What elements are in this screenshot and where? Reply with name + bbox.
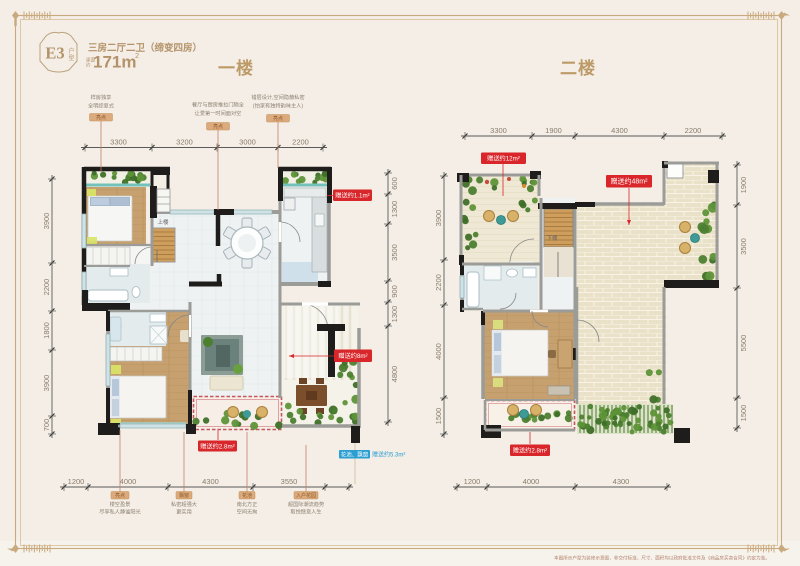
svg-text:3550: 3550: [281, 477, 298, 486]
svg-text:型: 型: [68, 54, 74, 62]
svg-text:亮点: 亮点: [96, 114, 106, 121]
svg-text:赠送约1.1m²: 赠送约1.1m²: [335, 192, 369, 200]
svg-text:2200: 2200: [434, 274, 443, 291]
svg-text:超国际潮流趋势: 超国际潮流趋势: [288, 500, 324, 508]
svg-text:4000: 4000: [120, 477, 137, 486]
svg-text:更实用: 更实用: [176, 508, 192, 516]
svg-text:私密超强大: 私密超强大: [171, 500, 197, 508]
svg-text:1300: 1300: [390, 201, 399, 218]
svg-text:3900: 3900: [42, 375, 51, 392]
svg-text:尽享私人静谧阳光: 尽享私人静谧阳光: [99, 508, 141, 516]
svg-text:赠送约2.8m²: 赠送约2.8m²: [513, 447, 547, 455]
svg-text:4000: 4000: [523, 477, 540, 486]
svg-text:飘窗: 飘窗: [179, 492, 189, 499]
svg-text:亮点: 亮点: [273, 115, 283, 122]
svg-text:3000: 3000: [239, 138, 256, 147]
svg-text:花池: 花池: [242, 492, 252, 499]
svg-text:下楼: 下楼: [546, 234, 558, 242]
svg-text:900: 900: [390, 285, 399, 298]
svg-text:1200: 1200: [68, 477, 85, 486]
svg-text:E3: E3: [45, 44, 64, 63]
svg-text:餐厅与厨房推拉门隔全: 餐厅与厨房推拉门隔全: [192, 101, 245, 109]
svg-text:(怕家有独特韵味主人): (怕家有独特韵味主人): [253, 102, 303, 110]
svg-text:赠送约8m²: 赠送约8m²: [338, 352, 367, 360]
svg-text:错层设计,空间隐蔽私密: 错层设计,空间隐蔽私密: [251, 93, 304, 101]
svg-text:赠送约2.8m²: 赠送约2.8m²: [200, 442, 234, 450]
svg-text:二楼: 二楼: [560, 58, 596, 78]
svg-text:1300: 1300: [390, 306, 399, 323]
svg-text:171m: 171m: [93, 53, 136, 72]
svg-text:一楼: 一楼: [218, 58, 254, 78]
svg-text:1200: 1200: [464, 477, 481, 486]
svg-text:2200: 2200: [685, 126, 702, 135]
svg-text:赠送约12m²: 赠送约12m²: [487, 155, 520, 163]
svg-text:赠送约48m²: 赠送约48m²: [611, 177, 649, 186]
svg-text:700: 700: [42, 419, 51, 432]
svg-text:上楼: 上楼: [157, 218, 169, 226]
svg-text:约: 约: [86, 62, 91, 69]
svg-text:1500: 1500: [434, 408, 443, 425]
svg-text:户: 户: [68, 47, 74, 55]
svg-text:1900: 1900: [545, 126, 562, 135]
svg-text:5500: 5500: [739, 335, 748, 352]
svg-text:楼空盈景: 楼空盈景: [110, 500, 131, 508]
svg-text:3900: 3900: [434, 210, 443, 227]
svg-text:3200: 3200: [176, 138, 193, 147]
svg-text:全明综复式: 全明综复式: [88, 102, 115, 110]
svg-text:4300: 4300: [202, 477, 219, 486]
svg-text:1900: 1900: [739, 177, 748, 194]
svg-text:3500: 3500: [390, 244, 399, 261]
svg-text:亮点: 亮点: [213, 123, 223, 130]
svg-text:4300: 4300: [613, 477, 630, 486]
svg-text:样房独享: 样房独享: [91, 93, 112, 101]
svg-text:2200: 2200: [42, 279, 51, 296]
svg-text:3500: 3500: [739, 238, 748, 255]
svg-text:3300: 3300: [110, 138, 127, 147]
svg-text:600: 600: [390, 177, 399, 190]
svg-text:本图所示户型为装修示意图，非交付标准，尺寸、面积均以政府批准: 本图所示户型为装修示意图，非交付标准，尺寸、面积均以政府批准文件及《商品房买卖合…: [554, 555, 770, 562]
svg-text:空间无拘: 空间无拘: [237, 508, 258, 516]
svg-text:赠送约5.3m²: 赠送约5.3m²: [372, 451, 405, 459]
svg-text:取悦惬意人生: 取悦惬意人生: [290, 508, 321, 516]
svg-text:1800: 1800: [42, 322, 51, 339]
svg-text:亮点: 亮点: [115, 492, 125, 499]
svg-text:2: 2: [135, 51, 139, 60]
svg-text:4300: 4300: [611, 126, 628, 135]
svg-text:4800: 4800: [390, 366, 399, 383]
svg-text:南北方正: 南北方正: [237, 500, 258, 508]
svg-text:1500: 1500: [739, 405, 748, 422]
svg-text:3900: 3900: [42, 213, 51, 230]
svg-text:入户花园: 入户花园: [296, 492, 316, 499]
svg-text:2200: 2200: [292, 138, 309, 147]
svg-text:3300: 3300: [490, 126, 507, 135]
svg-text:让爱第一时间面对空: 让爱第一时间面对空: [195, 109, 242, 117]
svg-text:花池、飘窗: 花池、飘窗: [341, 451, 369, 459]
svg-text:4000: 4000: [434, 343, 443, 360]
